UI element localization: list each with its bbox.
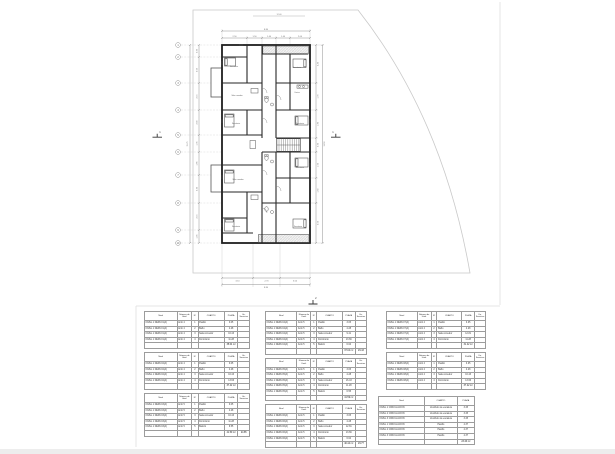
building: Dormitorio Dormitorio Sala comedor Cocin… <box>211 44 311 243</box>
area-table-depa-03: NivelNúmero de Unid.N°CUARTOPLAZAUn. Ser… <box>144 393 250 437</box>
area-table-depa-02: NivelNúmero de Unid.N°CUARTOPLAZAUn. Ser… <box>144 352 250 390</box>
area-table: NivelNúmero de Unid.N°CUARTOPLAZAUn. Ser… <box>265 404 367 448</box>
dim-label: 1.60 <box>317 162 319 167</box>
dim-label: 8.80 <box>264 29 269 31</box>
room-label: Dormitorio <box>294 225 302 228</box>
dim-label: 1.35 <box>197 141 199 146</box>
site-width-note: 12.40 <box>253 14 305 16</box>
section-marker-left: 1 <box>153 130 163 137</box>
room-label: Dormitorio <box>296 122 304 125</box>
terrace-hatch-top <box>263 46 309 54</box>
area-table-depa-01: NivelNúmero de Unid.N°CUARTOPLAZAUn. Ser… <box>144 311 250 349</box>
area-table: NivelNúmero de Unid.N°CUARTOPLAZAUn. Ser… <box>386 352 486 390</box>
area-table: NivelNúmero de Unid.N°CUARTOPLAZAUn. Ser… <box>265 358 367 402</box>
room-label: Sala comedor <box>231 95 242 97</box>
dim-label: 2.15 <box>197 94 199 99</box>
staircase <box>277 139 300 152</box>
balcony-left-bottom <box>211 165 222 192</box>
dim-label: 1.70 <box>317 94 319 99</box>
dim-label: 2.40 <box>317 61 319 66</box>
area-table: NivelNúmero de Unid.N°CUARTOPLAZAUn. Ser… <box>144 311 250 349</box>
dim-label: 1.85 <box>197 161 199 166</box>
dim-label: 0.95 <box>197 48 199 53</box>
section-label: 2 <box>315 296 317 300</box>
area-table: NivelCUARTOPLAZANIVEL 1 CIRCULACIÓNVestí… <box>378 396 475 445</box>
balcony-left-top <box>211 68 222 97</box>
room-label: Dormitorio <box>230 65 238 68</box>
room-label: Sala comedor <box>232 179 243 181</box>
area-table-depa-08: NivelNúmero de Unid.N°CUARTOPLAZAUn. Ser… <box>386 352 486 390</box>
section-marker-bottom: 2 <box>309 296 318 304</box>
dim-label: 2.20 <box>197 186 199 191</box>
table-group-right: NivelNúmero de Unid.N°CUARTOPLAZAUn. Ser… <box>386 311 486 393</box>
area-table-circulation: NivelCUARTOPLAZANIVEL 1 CIRCULACIÓNVestí… <box>378 396 475 445</box>
table-group-left: NivelNúmero de Unid.N°CUARTOPLAZAUn. Ser… <box>144 311 250 440</box>
dim-label: 3.00 <box>293 281 298 283</box>
dim-label: 15.75 <box>187 141 189 147</box>
dim-label: 2.00 <box>298 36 303 38</box>
dim-label: 2.50 <box>317 220 319 225</box>
table-group-middle: NivelNúmero de Unid.N°CUARTOPLAZAUn. Ser… <box>265 311 367 451</box>
dim-label: 2.70 <box>265 281 270 283</box>
dim-label: 2.05 <box>197 67 199 72</box>
area-table: NivelNúmero de Unid.N°CUARTOPLAZAUn. Ser… <box>144 393 250 437</box>
area-table: NivelNúmero de Unid.N°CUARTOPLAZAUn. Ser… <box>144 352 250 390</box>
area-table-depa-04: NivelNúmero de Unid.N°CUARTOPLAZAUn. Ser… <box>265 311 367 355</box>
dim-label: 1.40 <box>267 36 272 38</box>
dim-label: 3.10 <box>236 281 241 283</box>
table-group-circulation: NivelCUARTOPLAZANIVEL 1 CIRCULACIÓNVestí… <box>378 396 475 448</box>
area-table: NivelNúmero de Unid.N°CUARTOPLAZAUn. Ser… <box>386 311 486 349</box>
dim-label: 8.80 <box>264 287 269 289</box>
dim-label: 2.50 <box>233 36 238 38</box>
terrace-hatch-bottom <box>259 235 310 243</box>
section-label: 1 <box>332 130 334 134</box>
room-label: Dormitorio <box>296 166 304 169</box>
area-table-depa-06: NivelNúmero de Unid.N°CUARTOPLAZAUn. Ser… <box>265 404 367 448</box>
section-label: 1 <box>159 130 161 134</box>
window-bottom-edge <box>0 449 615 454</box>
room-label: Dormitorio <box>293 66 301 69</box>
dim-label: 12.50 <box>324 141 326 147</box>
area-table-depa-07: NivelNúmero de Unid.N°CUARTOPLAZAUn. Ser… <box>386 311 486 349</box>
dim-label: 2.15 <box>197 214 199 219</box>
dim-label: 1.50 <box>253 36 258 38</box>
dim-label: 1.05 <box>197 234 199 239</box>
area-table-depa-05: NivelNúmero de Unid.N°CUARTOPLAZAUn. Ser… <box>265 358 367 402</box>
section-marker-right: 1 <box>331 130 341 137</box>
site-width-label: 12.40 <box>276 14 282 16</box>
dim-label: 1.80 <box>317 121 319 126</box>
grid-bubbles: 1 2 3 4 5 6 7 8 9 10 <box>176 43 181 246</box>
room-label: Cocina <box>294 92 300 94</box>
dim-label: 2.00 <box>197 120 199 125</box>
dim-label: 0.90 <box>317 142 319 147</box>
area-table: NivelNúmero de Unid.N°CUARTOPLAZAUn. Ser… <box>265 311 367 355</box>
dim-label: 1.40 <box>281 36 286 38</box>
dim-label: 1.60 <box>317 188 319 193</box>
room-label: Dormitorio <box>232 225 240 228</box>
drawing-sheet: { "plan": { "site_width_label": "12.40",… <box>0 0 615 454</box>
room-label: Dormitorio <box>232 122 240 125</box>
